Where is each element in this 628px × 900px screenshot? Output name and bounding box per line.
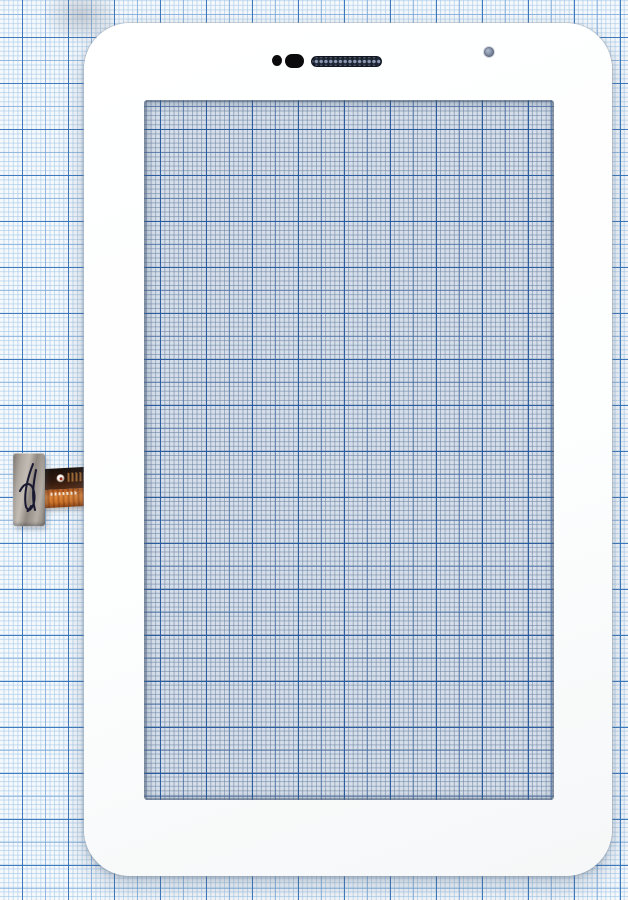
ribbon-logo-dot: [56, 474, 64, 482]
earpiece-speaker-grille: [311, 56, 382, 67]
ribbon-dark-band: [41, 467, 89, 490]
ribbon-marking: [67, 472, 85, 482]
flex-ribbon-cable: [41, 467, 90, 508]
light-sensor-slot: [285, 54, 304, 68]
glass-viewport-window: [144, 100, 554, 800]
digitizer-frame: [84, 23, 612, 876]
ribbon-fine-print: [50, 491, 78, 495]
handwritten-qc-mark-icon: [13, 453, 45, 526]
proximity-sensor-dot: [272, 55, 282, 66]
front-camera-hole: [484, 47, 494, 57]
flex-connector-end: [13, 453, 45, 526]
photo-scene: [0, 0, 628, 900]
ribbon-copper-band: [42, 488, 90, 508]
